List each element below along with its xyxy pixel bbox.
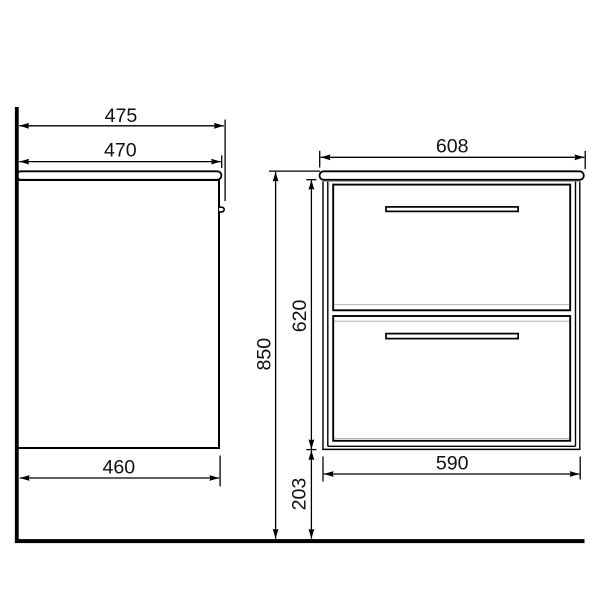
- svg-text:470: 470: [104, 139, 137, 161]
- svg-text:608: 608: [436, 136, 469, 158]
- svg-text:460: 460: [102, 456, 135, 478]
- svg-text:620: 620: [289, 299, 311, 332]
- svg-text:850: 850: [253, 338, 275, 371]
- svg-text:203: 203: [289, 478, 311, 511]
- svg-text:590: 590: [436, 452, 469, 474]
- svg-text:475: 475: [105, 105, 138, 127]
